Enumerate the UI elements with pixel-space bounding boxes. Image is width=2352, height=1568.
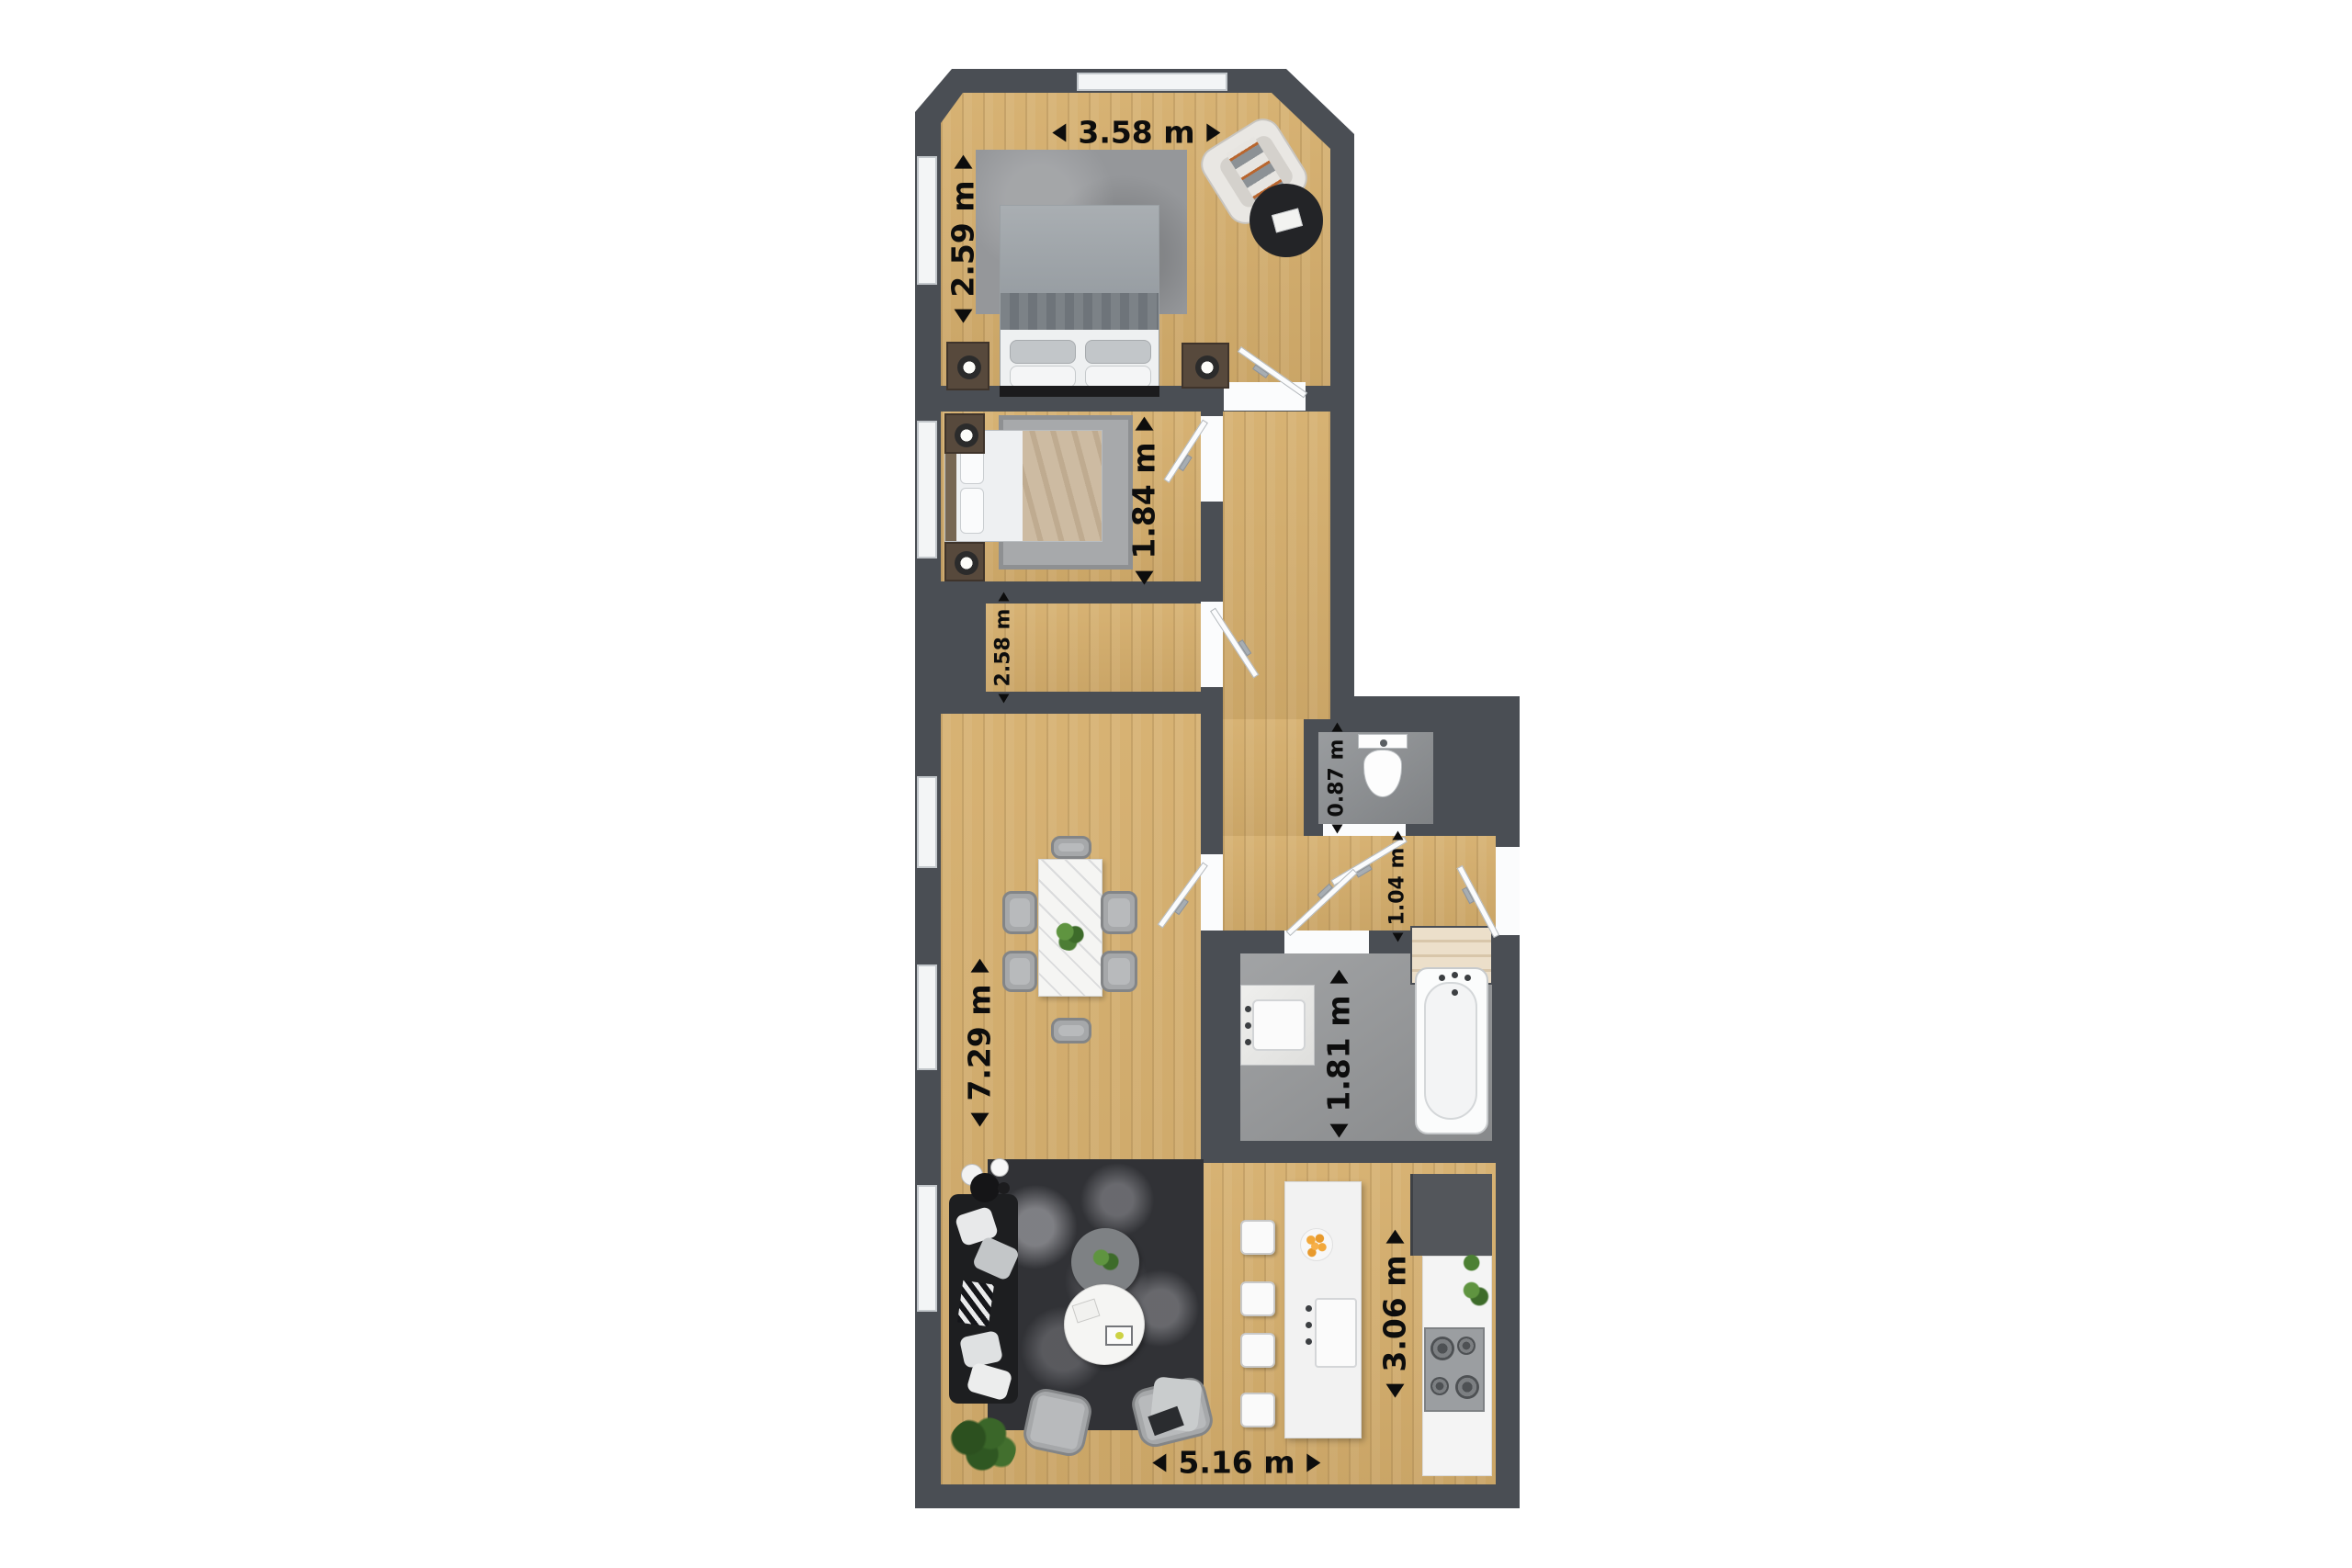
burner-icon (1455, 1375, 1479, 1399)
arrow-down-icon (1135, 571, 1153, 585)
arrow-down-icon (1331, 824, 1342, 833)
arrow-down-icon (954, 310, 972, 323)
dining-chair (1101, 891, 1137, 934)
lamp-icon (955, 551, 978, 575)
sofa-pillow (966, 1362, 1012, 1402)
dimension-wc-width: 0.87 m (1326, 723, 1349, 834)
floor-plant-icon (948, 1416, 1016, 1477)
dimension-text: 3.58 m (1078, 115, 1194, 151)
dining-chair (1002, 891, 1037, 934)
dining-left-window (917, 776, 937, 868)
arrow-up-icon (1385, 1229, 1404, 1243)
bed-pillow (1010, 340, 1076, 364)
dimension-text: 1.84 m (1126, 442, 1162, 558)
dimension-text: 2.58 m (992, 609, 1015, 687)
sofa-pillow (959, 1330, 1003, 1369)
bar-stool (1240, 1333, 1275, 1368)
counter-herb-icon (1459, 1278, 1490, 1309)
bedroom1-bed (1000, 205, 1159, 397)
dimension-bedroom2-depth: 1.84 m (1126, 416, 1162, 584)
bedroom2-nightstand-bottom (944, 542, 985, 581)
arrow-right-icon (1207, 123, 1221, 141)
table-plant-icon (1055, 921, 1084, 951)
bedroom1-left-window (917, 156, 937, 285)
bathtub-basin (1424, 982, 1477, 1120)
dimension-bedroom1-depth: 2.59 m (945, 154, 981, 322)
arrow-up-icon (1331, 723, 1342, 732)
bed-duvet (1001, 206, 1159, 293)
dimension-text: 2.59 m (945, 180, 981, 297)
dimension-kitchen-depth: 3.06 m (1377, 1229, 1413, 1397)
lamp-icon (955, 423, 978, 447)
arrow-up-icon (1135, 416, 1153, 430)
bedroom2-left-window (917, 421, 937, 558)
arrow-up-icon (998, 592, 1009, 602)
coffee-table-round-marble (1064, 1284, 1145, 1365)
dining-chair (1101, 951, 1137, 992)
refrigerator (1410, 1174, 1492, 1256)
dimension-bathroom-width: 1.81 m (1321, 969, 1357, 1137)
arrow-up-icon (970, 958, 989, 972)
dimension-text: 7.29 m (962, 984, 998, 1100)
kitchen-island (1284, 1181, 1362, 1438)
arrow-down-icon (1329, 1124, 1348, 1138)
floor-lamp-icon (952, 1155, 1016, 1210)
magazine-icon (1105, 1325, 1133, 1346)
papers-icon (1072, 1298, 1101, 1323)
bathroom-sink-counter (1240, 985, 1315, 1066)
dimension-text: 5.16 m (1178, 1445, 1295, 1481)
arrow-up-icon (1329, 969, 1348, 983)
dimension-text: 3.06 m (1377, 1255, 1413, 1371)
burner-icon (1430, 1377, 1449, 1395)
closet-wall-block (941, 604, 986, 692)
bed-pillow (960, 488, 984, 534)
dimension-hallway-width: 1.04 m (1386, 831, 1409, 942)
apartment-floor-plan: 3.58 m 2.59 m 1.84 m 2.58 m 0.87 m 1.04 … (915, 69, 1520, 1508)
counter-herb-icon (1461, 1252, 1485, 1276)
bed-throw-blanket (1023, 431, 1102, 541)
sofa-pillow (971, 1235, 1020, 1281)
corridor-lower-floor (1223, 719, 1304, 836)
burner-icon (1430, 1337, 1454, 1360)
bathtub (1415, 967, 1488, 1134)
dining-chair (1051, 836, 1091, 859)
toilet-flush-button (1380, 739, 1387, 747)
arrow-down-icon (998, 694, 1009, 703)
arrow-up-icon (954, 154, 972, 168)
dimension-text: 0.87 m (1326, 739, 1349, 818)
bedroom1-side-table (1249, 184, 1323, 257)
bar-stool (1240, 1220, 1275, 1255)
cooktop (1424, 1327, 1485, 1412)
bedroom1-top-window (1077, 73, 1227, 91)
bathroom-door-opening (1284, 931, 1369, 953)
arrow-right-icon (1307, 1453, 1321, 1472)
dining-chair (1051, 1018, 1091, 1043)
bed-pillow (1085, 366, 1151, 388)
bedroom1-nightstand-left (946, 342, 989, 390)
sofa-pillow-patterned (957, 1280, 994, 1326)
dining-chair (1002, 951, 1037, 992)
entry-door-opening (1496, 847, 1520, 935)
dimension-bedroom1-width: 3.58 m (1052, 115, 1220, 151)
dimension-closet-width: 2.58 m (992, 592, 1015, 704)
sofa (949, 1194, 1018, 1404)
arrow-down-icon (1392, 932, 1403, 942)
bar-stool (1240, 1393, 1275, 1427)
arrow-down-icon (1385, 1384, 1404, 1398)
lamp-icon (1195, 355, 1219, 379)
bed-pillow (1085, 340, 1151, 364)
book-icon (1272, 208, 1303, 232)
arrow-down-icon (970, 1113, 989, 1127)
island-sink (1315, 1298, 1357, 1368)
living-left-window-1 (917, 964, 937, 1070)
bed-pillow (1010, 366, 1076, 388)
living-left-window-2 (917, 1185, 937, 1312)
corridor-floor (1223, 412, 1330, 719)
dimension-text: 1.81 m (1321, 995, 1357, 1111)
lamp-icon (957, 355, 981, 379)
bedroom1-headboard (1000, 386, 1159, 397)
bedroom1-nightstand-right (1182, 343, 1229, 389)
dimension-living-depth: 7.29 m (962, 958, 998, 1126)
burner-icon (1457, 1337, 1476, 1355)
bedroom2-nightstand-top (944, 413, 985, 454)
dimension-living-width: 5.16 m (1152, 1445, 1320, 1481)
arrow-left-icon (1152, 1453, 1166, 1472)
fruit-bowl-icon (1300, 1228, 1333, 1261)
floor-plan-page: 3.58 m 2.59 m 1.84 m 2.58 m 0.87 m 1.04 … (0, 0, 2352, 1568)
sink-basin (1252, 999, 1306, 1051)
arrow-up-icon (1392, 831, 1403, 840)
bed-knit-band (1001, 293, 1159, 330)
coffee-table-plant-icon (1091, 1247, 1119, 1274)
bar-stool (1240, 1281, 1275, 1316)
dimension-text: 1.04 m (1386, 848, 1409, 926)
arrow-left-icon (1052, 123, 1066, 141)
hallway-floor (1223, 836, 1496, 931)
